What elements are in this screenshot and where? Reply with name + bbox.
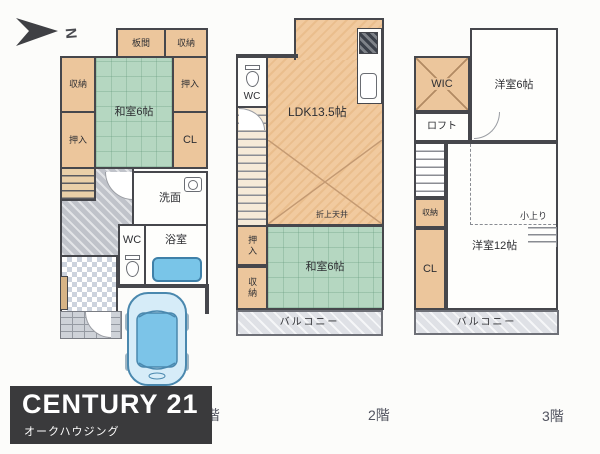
bathtub-icon — [152, 257, 202, 282]
floorplan-image: N 板間 収納 収納 和室6帖 押入 押入 CL 洗面 WC 浴室 — [0, 0, 600, 454]
ceiling-note-label: 折上天井 — [316, 209, 348, 220]
room-label: 収納 — [422, 208, 438, 217]
toilet-icon — [125, 255, 140, 277]
north-label: N — [62, 27, 80, 39]
stairs-3f — [414, 142, 446, 198]
room-wic-3f: WIC — [414, 56, 470, 112]
room-label: CL — [183, 134, 197, 147]
wood-door-1f — [60, 276, 68, 310]
room-storage-2f: 収納 — [236, 266, 268, 310]
room-label: WIC — [429, 78, 454, 91]
room-washitsu-2f: 和室6帖 — [266, 225, 384, 310]
room-label: 洗面 — [159, 192, 181, 205]
room-label: 浴室 — [165, 234, 187, 247]
room-oshiire-right-1f: 押入 — [172, 56, 208, 113]
wall-segment — [118, 284, 209, 288]
room-closet-1f: CL — [172, 111, 208, 169]
room-storage-top-1f: 収納 — [164, 28, 208, 58]
room-loft-3f: ロフト — [414, 112, 470, 142]
room-storage-3f: 収納 — [414, 198, 446, 228]
room-washroom-1f: 洗面 — [132, 171, 208, 226]
logo-company-text: オークハウジング — [24, 423, 119, 439]
floor-label-3f: 3階 — [542, 406, 564, 426]
room-wc-1f: WC — [118, 224, 146, 288]
room-label: CL — [423, 263, 437, 276]
kitchen-stove-icon — [359, 32, 378, 54]
room-washitsu-1f: 和室6帖 — [94, 56, 174, 169]
room-label: バルコニー — [457, 317, 517, 329]
room-label: 収納 — [247, 277, 257, 299]
room-label: 洋室6帖 — [494, 79, 533, 92]
koagari-label: 小上り — [520, 209, 547, 222]
north-arrow-icon: N — [14, 16, 84, 52]
room-label: LDK13.5帖 — [288, 106, 347, 120]
room-oshiire-left-1f: 押入 — [60, 111, 96, 169]
room-label: 収納 — [69, 79, 87, 89]
sink-icon — [184, 177, 202, 192]
room-label: WC — [123, 234, 141, 247]
logo-brand-text: CENTURY 21 — [22, 389, 199, 420]
room-storage-left-1f: 収納 — [60, 56, 96, 113]
room-itanoma-1f: 板間 — [116, 28, 166, 58]
room-label: 洋室12帖 — [472, 240, 517, 253]
room-label: 板間 — [132, 38, 150, 48]
kitchen-counter-2f — [357, 28, 382, 104]
century21-logo: CENTURY 21 オークハウジング — [10, 386, 212, 444]
balcony-2f: バルコニー — [236, 310, 383, 336]
entrance-room-1f — [60, 255, 118, 313]
kitchen-sink-icon — [360, 73, 377, 99]
room-oshiire-2f: 押入 — [236, 225, 268, 266]
balcony-3f: バルコニー — [414, 310, 559, 335]
room-label: 和室6帖 — [305, 261, 344, 274]
wall-segment — [205, 288, 209, 314]
room-label: 押入 — [247, 235, 257, 257]
room-bathroom-1f: 浴室 — [144, 224, 208, 288]
koagari-steps-icon — [528, 227, 557, 247]
room-label: 押入 — [181, 79, 199, 89]
floor-label-2f: 2階 — [368, 405, 390, 425]
room-label: バルコニー — [280, 317, 340, 329]
room-label: WC — [244, 91, 261, 103]
room-label: 和室6帖 — [114, 106, 153, 119]
car-illustration — [124, 291, 190, 389]
stairs-1f — [60, 167, 96, 201]
room-wc-2f: WC — [236, 56, 268, 108]
room-label: 収納 — [177, 38, 195, 48]
toilet-icon — [245, 65, 260, 87]
room-label: ロフト — [427, 121, 457, 133]
room-closet-3f: CL — [414, 228, 446, 310]
room-label: 押入 — [69, 135, 87, 145]
